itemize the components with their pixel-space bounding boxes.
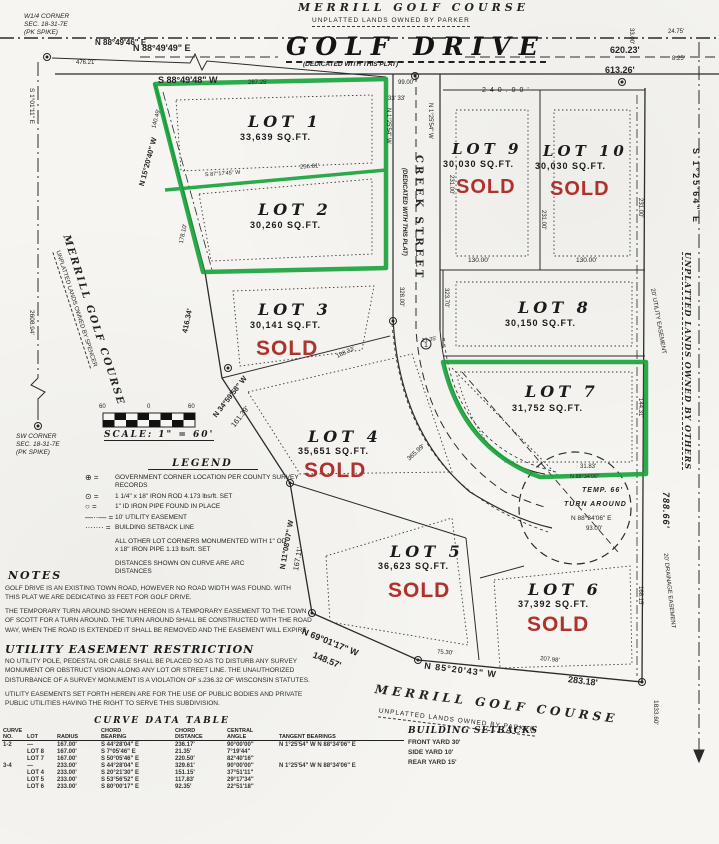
bearing-golf-north: N 88°49'49" E xyxy=(133,44,191,53)
curve-row: LOT 8167.00'S 7°05'46" E21.35'7°19'44" xyxy=(2,748,404,755)
cell: 233.00' xyxy=(56,762,100,769)
cell: 167.00' xyxy=(56,755,100,762)
curve-row: 1-2—167.00'S 44°28'04" E236.17'90°00'00"… xyxy=(2,741,404,749)
utility-easement-line xyxy=(163,92,212,270)
lot6-area: 37,392 SQ.FT. xyxy=(518,599,589,609)
notes-title: NOTES xyxy=(8,570,62,581)
dim-9300: 93.00' xyxy=(586,526,602,532)
dim-14431: 144.31' xyxy=(637,398,643,418)
government-corner-icon: ⊕ = xyxy=(85,474,115,482)
dim-32370: 323.70' xyxy=(443,288,449,308)
lot1-area: 33,639 SQ.FT. xyxy=(240,132,311,142)
cell: S 53°56'52" E xyxy=(100,776,174,783)
legend: LEGEND ⊕ = GOVERNMENT CORNER LOCATION PE… xyxy=(85,458,320,576)
dim-16815: 168.15' xyxy=(637,586,643,606)
dim-231-east: 231.00' xyxy=(637,198,643,218)
cell xyxy=(2,755,26,762)
setback-lot4 xyxy=(248,354,452,474)
cell xyxy=(278,769,404,776)
lot9-sold-badge: SOLD xyxy=(456,176,516,199)
dim-613: 613.26' xyxy=(605,66,635,75)
plat-map: 1 MERRILL GOLF COURSE UNPLATTED LANDS OW… xyxy=(0,0,719,844)
cell: 3-4 xyxy=(2,762,26,769)
dim-240: 240.00' xyxy=(482,87,533,94)
lot8-name: LOT 8 xyxy=(518,298,592,317)
cell: S 44°28'04" E xyxy=(100,762,174,769)
cell: 37°51'11" xyxy=(226,769,278,776)
curve-table-header-row: CURVE NO. LOT RADIUS CHORD BEARING CHORD… xyxy=(2,728,404,741)
setback-front: FRONT YARD 30' xyxy=(408,738,538,748)
dim-33-33: 33' 33' xyxy=(388,96,405,102)
legend-item: ⊕ = GOVERNMENT CORNER LOCATION PER COUNT… xyxy=(85,474,320,491)
lot10-sold-badge: SOLD xyxy=(550,178,610,201)
lot3-name: LOT 3 xyxy=(258,300,332,319)
dim-476: 476.21' xyxy=(76,60,96,66)
dim-130-lot9: 130.00' xyxy=(468,258,489,265)
cell: — xyxy=(26,741,56,749)
cell: 329.61' xyxy=(174,762,226,769)
curve-data-table: CURVE DATA TABLE CURVE NO. LOT RADIUS CH… xyxy=(2,716,404,790)
lot9-name: LOT 9 xyxy=(452,140,522,158)
scale-tick-60a: 60 xyxy=(99,404,106,410)
legend-note-distances: DISTANCES SHOWN ON CURVE ARE ARC DISTANC… xyxy=(115,560,275,577)
owner-right: UNPLATTED LANDS OWNED BY OTHERS xyxy=(682,252,692,470)
cell: 117.83' xyxy=(174,776,226,783)
cell: 151.15' xyxy=(174,769,226,776)
lot3-sold-badge: SOLD xyxy=(256,337,318,361)
dim-78866: 788.66' xyxy=(661,492,670,529)
dim-825: 8.25' xyxy=(672,56,685,62)
temp-label: TEMP. 66' xyxy=(582,487,623,494)
iron-rod-icon: ⊙ = xyxy=(85,493,115,501)
sw-corner-note: SW CORNER SEC. 18-31-7E (PK SPIKE) xyxy=(16,433,60,457)
lot10-name: LOT 10 xyxy=(543,142,628,160)
cell: S 80°00'17" E xyxy=(100,783,174,790)
cell: LOT 5 xyxy=(26,776,56,783)
lot10-area: 30,030 SQ.FT. xyxy=(535,161,606,171)
cell xyxy=(278,755,404,762)
dim-231-lot9w: 231.00' xyxy=(448,175,454,195)
bearing-creek-west: N 1°25'54" W xyxy=(385,108,391,144)
col-radius: RADIUS xyxy=(56,728,100,741)
cell: 167.00' xyxy=(56,748,100,755)
cell: — xyxy=(26,762,56,769)
utility-paragraph-1: NO UTILITY POLE, PEDESTAL OR CABLE SHALL… xyxy=(5,657,327,685)
bearing-se-top: S 1°25'64" E xyxy=(691,148,700,224)
dim-231-divider: 231.00' xyxy=(540,210,546,230)
lot4-name: LOT 4 xyxy=(308,427,382,446)
highlight-lots-1-2 xyxy=(155,79,386,272)
cell: S 44°28'04" E xyxy=(100,741,174,749)
cell: 82°40'16" xyxy=(226,755,278,762)
cell xyxy=(2,769,26,776)
iron-pipe-icon: ○ = xyxy=(85,503,115,511)
lot7-name: LOT 7 xyxy=(525,382,599,401)
cell xyxy=(278,748,404,755)
lot1-name: LOT 1 xyxy=(248,112,322,131)
cell: 90°00'00" xyxy=(226,762,278,769)
cell: S 50°05'46" E xyxy=(100,755,174,762)
dim-328: 328.00' xyxy=(398,287,404,307)
highlight-lot7 xyxy=(443,362,646,477)
legend-item: ○ = 1" ID IRON PIPE FOUND IN PLACE xyxy=(85,503,320,511)
dim-3183: 31.83' xyxy=(580,464,596,470)
turn-around-label: TURN AROUND xyxy=(564,501,627,508)
legend-title: LEGEND xyxy=(148,458,258,470)
section-line-break xyxy=(31,378,45,420)
col-chord-distance: CHORD DISTANCE xyxy=(174,728,226,741)
lot5-sold-badge: SOLD xyxy=(388,579,450,603)
cell: 92.35' xyxy=(174,783,226,790)
col-lot: LOT xyxy=(26,728,56,741)
lot7-area: 31,752 SQ.FT. xyxy=(512,403,583,413)
cell: 21.35' xyxy=(174,748,226,755)
lot9-area: 30,030 SQ.FT. xyxy=(443,159,514,169)
dim-7530: 75.30' xyxy=(437,649,454,656)
dim-287: 287.25' xyxy=(248,80,268,86)
bearing-8834: N 88°34'06" E xyxy=(571,516,611,523)
scale-label: SCALE: 1" = 60' xyxy=(104,431,214,441)
cell xyxy=(2,776,26,783)
creek-street-sub: (DEDICATED WITH THIS PLAT) xyxy=(401,168,407,256)
legend-item: —··— = 10' UTILITY EASEMENT xyxy=(85,514,320,522)
setback-side: SIDE YARD 10' xyxy=(408,748,538,758)
legend-note-monuments: ALL OTHER LOT CORNERS MONUMENTED WITH 1"… xyxy=(115,538,290,555)
cell: 29°17'34" xyxy=(226,776,278,783)
utility-paragraph-2: UTILITY EASEMENTS SET FORTH HEREIN ARE F… xyxy=(5,690,315,709)
notes-paragraph-2: THE TEMPORARY TURN AROUND SHOWN HEREON I… xyxy=(5,607,317,635)
cell: 233.00' xyxy=(56,769,100,776)
lot6-north-line xyxy=(480,566,524,578)
lot4-area: 35,651 SQ.FT. xyxy=(298,446,369,456)
setback-line-icon: ······· = xyxy=(85,524,115,532)
col-chord-bearing: CHORD BEARING xyxy=(100,728,174,741)
cell: 220.50' xyxy=(174,755,226,762)
cell: 167.00' xyxy=(56,741,100,749)
cell: 236.17' xyxy=(174,741,226,749)
cell: 1-2 xyxy=(2,741,26,749)
scale-bar xyxy=(103,413,195,427)
curve-row: LOT 6233.00'S 80°00'17" E92.35'22°51'18" xyxy=(2,783,404,790)
setback-rear: REAR YARD 15' xyxy=(408,758,538,768)
curve-row: LOT 5233.00'S 53°56'52" E117.83'29°17'34… xyxy=(2,776,404,783)
owner-top-name: MERRILL GOLF COURSE xyxy=(298,2,529,13)
cell: N 1°25'54" W N 88°34'06" E xyxy=(278,741,404,749)
scale-tick-0: 0 xyxy=(147,404,150,410)
cell xyxy=(278,776,404,783)
dim-130-lot10: 130.00' xyxy=(576,258,597,265)
legend-item-text: 10' UTILITY EASEMENT xyxy=(115,514,187,522)
cell: LOT 4 xyxy=(26,769,56,776)
creek-street-name: CREEK STREET xyxy=(413,155,423,280)
lot6-sold-badge: SOLD xyxy=(527,613,589,637)
utility-restriction-title: UTILITY EASEMENT RESTRICTION xyxy=(5,644,254,655)
cell xyxy=(2,783,26,790)
cell: LOT 6 xyxy=(26,783,56,790)
col-central-angle: CENTRAL ANGLE xyxy=(226,728,278,741)
dim-3300: 33.00' xyxy=(628,28,634,44)
cell: LOT 7 xyxy=(26,755,56,762)
curve-row: LOT 4233.00'S 20°21'30" E151.15'37°51'11… xyxy=(2,769,404,776)
cell: 22°51'18" xyxy=(226,783,278,790)
golf-drive-sub: (DEDICATED WITH THIS PLAT) xyxy=(303,62,398,69)
cell: 7°19'44" xyxy=(226,748,278,755)
lot3-area: 30,141 SQ.FT. xyxy=(250,320,321,330)
lot5-area: 36,623 SQ.FT. xyxy=(378,561,449,571)
bearing-west-section: S 1°01'11" E xyxy=(28,88,35,124)
lot2-area: 30,260 SQ.FT. xyxy=(250,220,321,230)
lot2-name: LOT 2 xyxy=(258,200,332,219)
bearing-golf-south: S 88°49'48" W xyxy=(158,76,218,85)
cell: LOT 8 xyxy=(26,748,56,755)
col-tangent-bearings: TANGENT BEARINGS xyxy=(278,728,404,741)
legend-item-text: 1 1/4" x 18" IRON ROD 4.173 lbs/ft. SET xyxy=(115,493,232,501)
col-curve-no: CURVE NO. xyxy=(2,728,26,741)
cell: 233.00' xyxy=(56,783,100,790)
cell: 233.00' xyxy=(56,776,100,783)
dim-183360: 1833.60' xyxy=(652,700,659,725)
cell: N 1°25'54" W N 88°34'06" E xyxy=(278,762,404,769)
lot8-area: 30,150 SQ.FT. xyxy=(505,318,576,328)
curve-table-title: CURVE DATA TABLE xyxy=(2,716,322,726)
legend-item-text: GOVERNMENT CORNER LOCATION PER COUNTY SU… xyxy=(115,474,320,491)
dim-620: 620.23' xyxy=(610,46,640,55)
lot5-name: LOT 5 xyxy=(390,542,464,561)
bearing-creek-east: N 1°25'54" W xyxy=(427,103,433,139)
legend-item-text: 1" ID IRON PIPE FOUND IN PLACE xyxy=(115,503,220,511)
dim-260894: 2608.94' xyxy=(28,310,35,335)
cell: S 20°21'30" E xyxy=(100,769,174,776)
owner-top-sub: UNPLATTED LANDS OWNED BY PARKER xyxy=(312,18,470,27)
scale-tick-60b: 60 xyxy=(188,404,195,410)
cell: S 7°05'46" E xyxy=(100,748,174,755)
notes-paragraph-1: GOLF DRIVE IS AN EXISTING TOWN ROAD, HOW… xyxy=(5,584,305,603)
curve-row: 3-4—233.00'S 44°28'04" E329.61'90°00'00"… xyxy=(2,762,404,769)
cell xyxy=(278,783,404,790)
golf-drive-name: GOLF DRIVE xyxy=(286,32,546,63)
utility-easement-line-icon: —··— = xyxy=(85,514,115,522)
lot6-name: LOT 6 xyxy=(528,580,602,599)
legend-item-text: BUILDING SETBACK LINE xyxy=(115,524,194,532)
curve-row: LOT 7167.00'S 50°05'46" E220.50'82°40'16… xyxy=(2,755,404,762)
w-quarter-corner-note: W1/4 CORNER SEC. 18-31-7E (PK SPIKE) xyxy=(24,13,69,37)
south-arrow xyxy=(694,750,704,762)
dim-2475: 24.75' xyxy=(668,29,684,35)
dim-99: 99.00' xyxy=(398,80,414,86)
bearing-8834-top: N 88°34'06" xyxy=(570,475,599,481)
cell xyxy=(2,748,26,755)
legend-item: ⊙ = 1 1/4" x 18" IRON ROD 4.173 lbs/ft. … xyxy=(85,493,320,501)
legend-item: ······· = BUILDING SETBACK LINE xyxy=(85,524,320,532)
cell: 90°00'00" xyxy=(226,741,278,749)
